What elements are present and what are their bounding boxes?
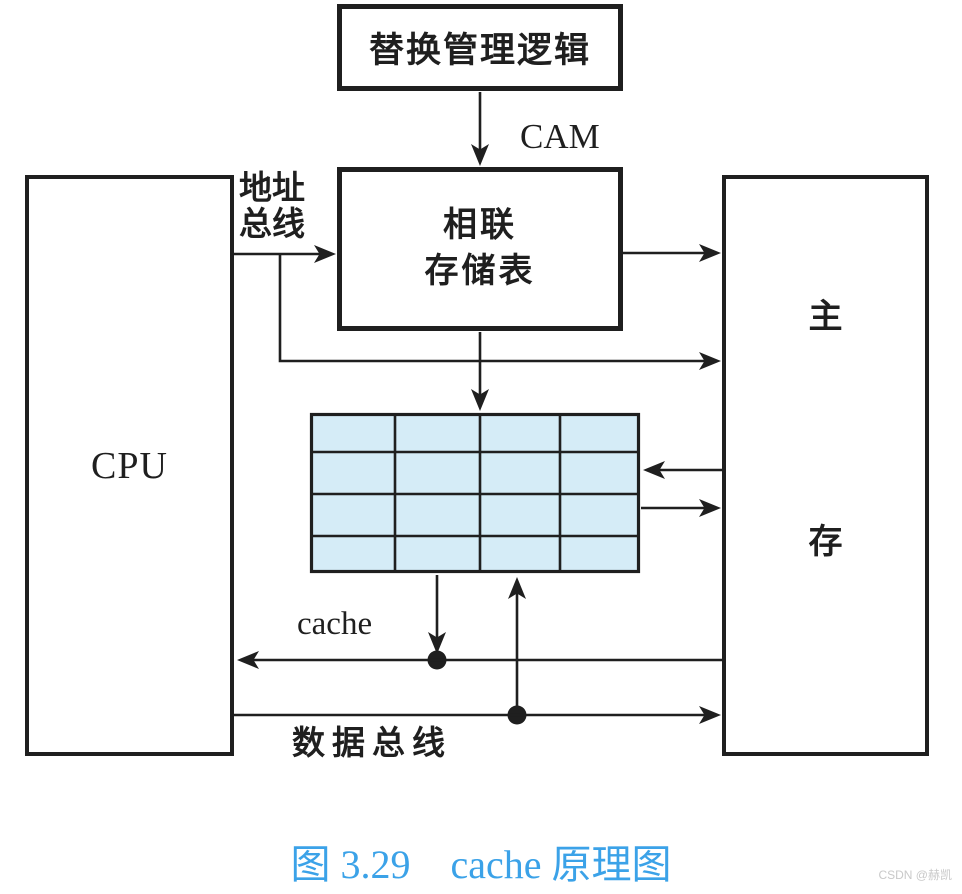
cam-arrow xyxy=(471,92,489,166)
cam-label: CAM xyxy=(520,118,600,157)
cpu-label: CPU xyxy=(91,444,168,488)
cache-principle-diagram: 替换管理逻辑 相联 存储表 CPU 主 存 地址 总线 CAM cache 数据… xyxy=(0,0,962,894)
address-bus-arrow xyxy=(234,245,336,263)
address-bus-label: 地址 总线 xyxy=(239,171,305,244)
main-memory-label-char1: 主 xyxy=(726,301,925,335)
address-bus-label-line1: 地址 xyxy=(239,171,305,207)
table-to-cache-arrow xyxy=(471,332,489,411)
figure-caption: 图 3.29 cache 原理图 xyxy=(0,832,962,890)
table-to-memory-arrow xyxy=(623,244,721,262)
cache-read-up-arrow xyxy=(508,577,527,725)
associative-table-label-line1: 相联 xyxy=(443,209,517,243)
main-memory-box: 主 存 xyxy=(722,175,929,756)
associative-table-label-line2: 存储表 xyxy=(425,255,536,289)
cache-bus-line xyxy=(237,651,723,669)
memory-to-cache-arrow xyxy=(643,461,722,479)
data-bus-label: 数据总线 xyxy=(292,726,452,762)
main-memory-label-char2: 存 xyxy=(726,526,925,560)
cache-to-memory-arrow xyxy=(641,499,721,517)
replacement-logic-box: 替换管理逻辑 xyxy=(337,4,623,91)
address-bus-label-line2: 总线 xyxy=(239,207,305,243)
csdn-watermark: CSDN @赫凯 xyxy=(878,866,952,883)
cpu-box: CPU xyxy=(25,175,234,756)
cache-grid xyxy=(312,415,639,572)
cache-write-down-arrow xyxy=(428,575,447,670)
data-bus-line xyxy=(234,706,721,724)
cache-label: cache xyxy=(297,606,372,642)
replacement-logic-label: 替换管理逻辑 xyxy=(369,22,591,73)
associative-table-box: 相联 存储表 xyxy=(337,167,623,331)
